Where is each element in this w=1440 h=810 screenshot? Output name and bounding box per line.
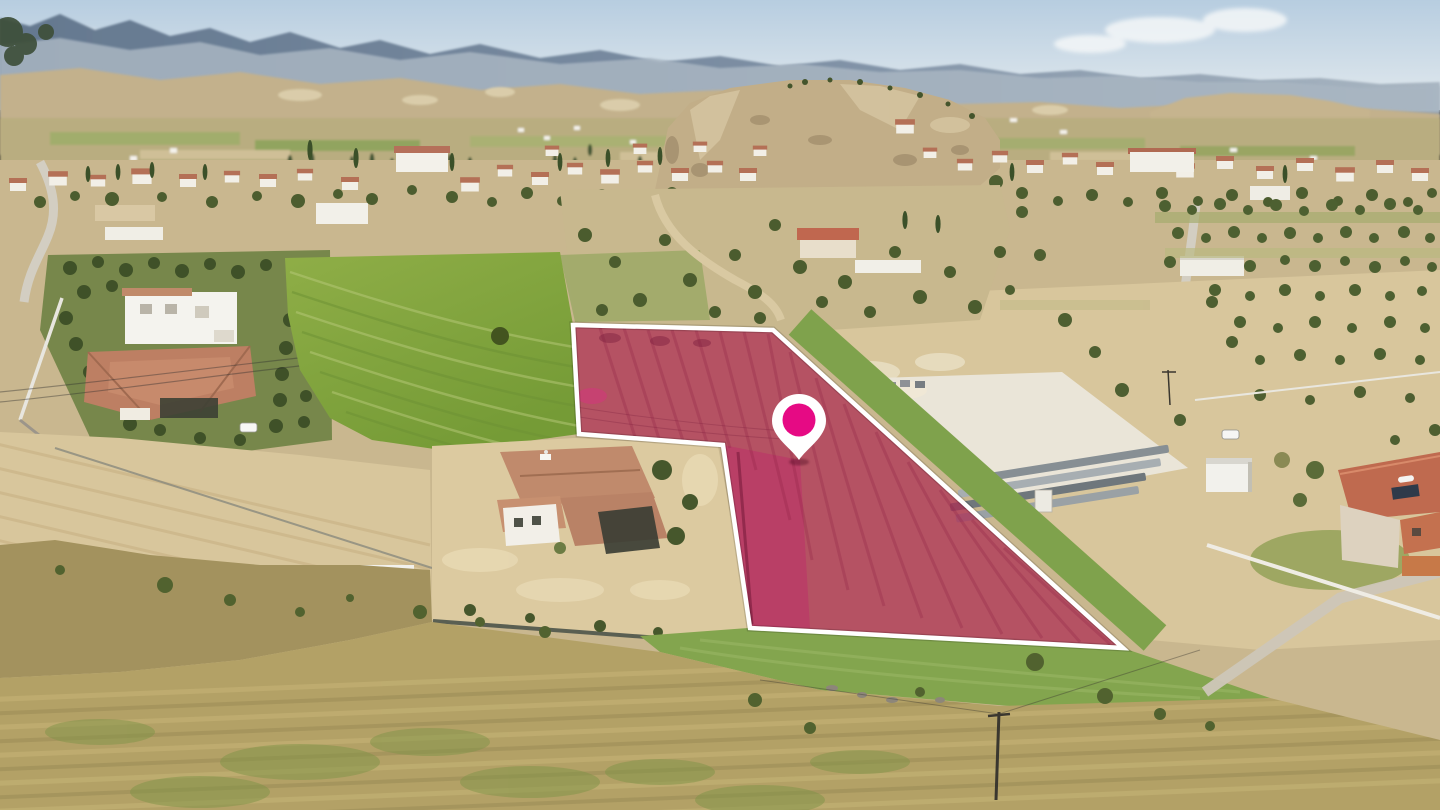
white-two-storey-house [122,288,237,344]
white-cabin [1206,458,1252,492]
pin-dot [783,404,816,437]
landscape-scene [0,0,1440,810]
site-hut [1035,490,1052,512]
center-villa-property [432,438,748,641]
parked-car-white [240,423,257,432]
lone-field-tree [491,327,509,345]
white-car [1222,430,1239,439]
upper-field-strip [560,185,1010,332]
aerial-photo [0,0,1440,810]
